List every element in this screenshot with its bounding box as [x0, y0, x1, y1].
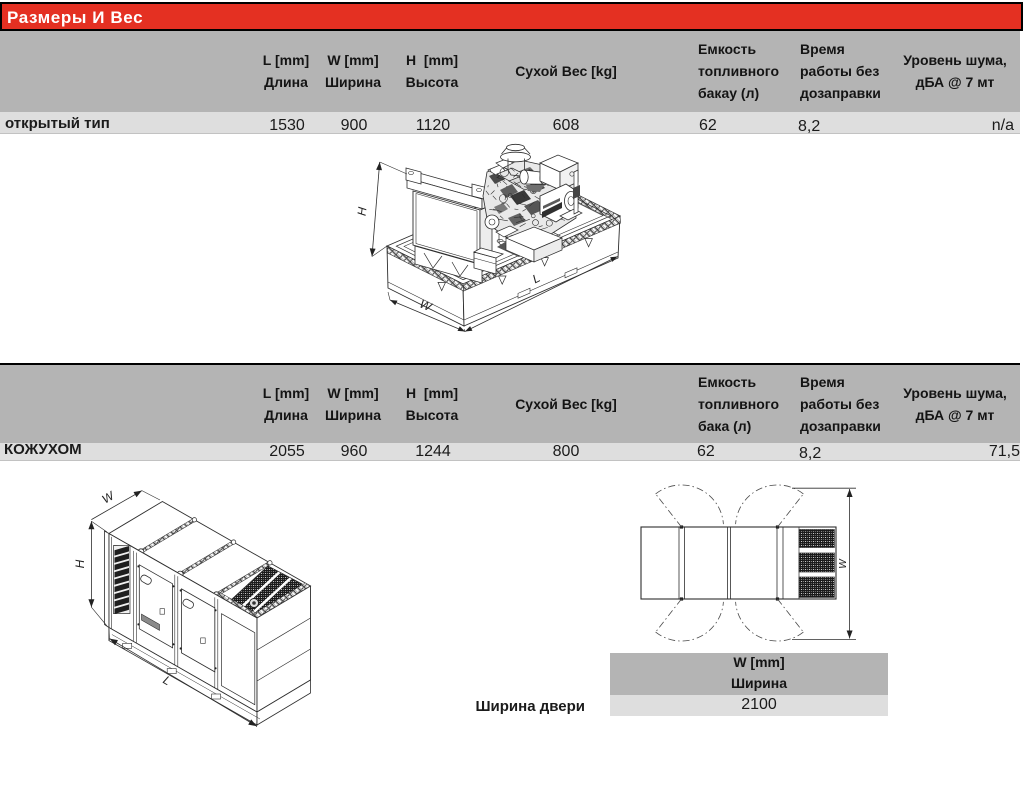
- svg-text:H: H: [73, 559, 87, 568]
- svg-text:W: W: [838, 558, 849, 569]
- svg-text:H: H: [355, 206, 370, 217]
- svg-text:L: L: [161, 673, 174, 688]
- svg-text:W: W: [99, 488, 117, 507]
